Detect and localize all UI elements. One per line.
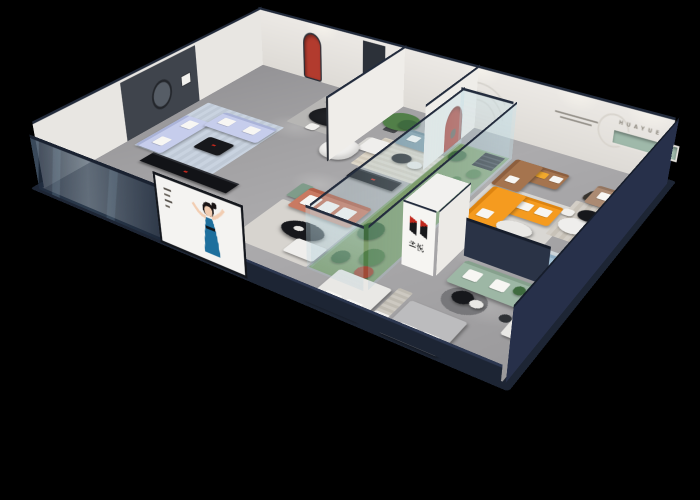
- logo-pillar-front: 华悦: [401, 199, 436, 276]
- sofa-pillow: [152, 136, 172, 146]
- brand-logo-mark: [420, 219, 428, 239]
- sofa-pillow: [180, 120, 200, 129]
- poster-vertical-text: [165, 199, 173, 204]
- poster-dress: [202, 215, 220, 257]
- red-arch-niche: [304, 32, 321, 80]
- poster-vertical-text: [163, 187, 171, 192]
- poster-vertical-text: [165, 204, 170, 208]
- showroom-floorplan: HUAYUE 华悦: [30, 59, 676, 391]
- small-frame-art: [181, 72, 191, 88]
- poster-vertical-text: [164, 193, 170, 197]
- sofa-pillow: [548, 175, 564, 183]
- brand-logo-characters: 华悦: [409, 239, 425, 255]
- render-background: HUAYUE 华悦: [0, 0, 700, 500]
- brand-logo-mark: [409, 216, 417, 236]
- sofa-pillow: [242, 126, 262, 135]
- round-wall-art: [151, 75, 174, 114]
- scene: HUAYUE 华悦: [0, 0, 700, 500]
